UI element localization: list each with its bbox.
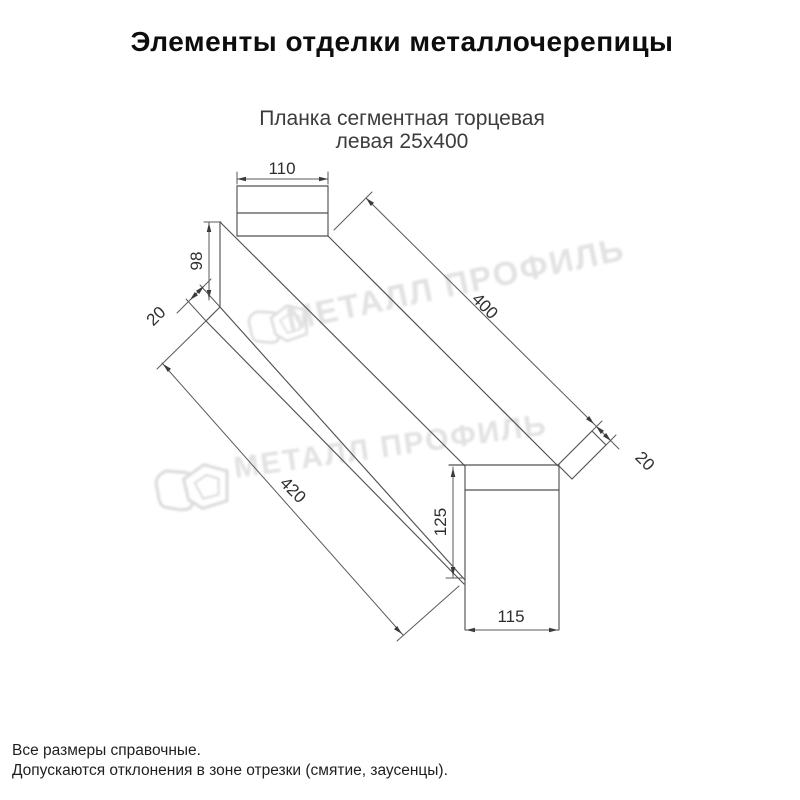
dim-20-top-label: 20 — [143, 303, 170, 330]
footer-note-1: Все размеры справочные. — [12, 741, 448, 761]
dim-top-end-height: 98 — [187, 222, 221, 300]
watermark-upper: МЕТАЛЛ ПРОФИЛЬ — [247, 230, 628, 347]
dim-top-hem: 20 — [143, 279, 220, 330]
dim-125-label: 125 — [431, 508, 450, 536]
footer-notes: Все размеры справочные. Допускаются откл… — [12, 741, 448, 781]
dim-top-flange-width: 110 — [237, 159, 328, 184]
dim-end-segment-height: 125 — [431, 467, 462, 578]
watermark-text: МЕТАЛЛ ПРОФИЛЬ — [283, 230, 628, 338]
bottom-segment-outline — [449, 465, 559, 630]
dim-115-label: 115 — [497, 607, 524, 626]
top-segment-outline — [237, 186, 328, 236]
dim-98-label: 98 — [187, 252, 206, 271]
end-hem-outline — [558, 431, 606, 479]
dim-110-label: 110 — [268, 159, 295, 178]
footer-note-2: Допускаются отклонения в зоне отрезки (с… — [12, 761, 448, 781]
watermark-lower: МЕТАЛЛ ПРОФИЛЬ — [154, 408, 549, 514]
dim-end-segment-width: 115 — [465, 607, 559, 632]
metal-profil-logo-icon — [154, 462, 231, 515]
dim-20-end-label: 20 — [631, 448, 658, 475]
strip-top-fold-edge — [220, 222, 465, 466]
watermark-text: МЕТАЛЛ ПРОФИЛЬ — [232, 408, 550, 485]
dim-end-hem: 20 — [592, 421, 658, 475]
technical-drawing: МЕТАЛЛ ПРОФИЛЬ МЕТАЛЛ ПРОФИЛЬ 110 98 — [0, 0, 800, 800]
